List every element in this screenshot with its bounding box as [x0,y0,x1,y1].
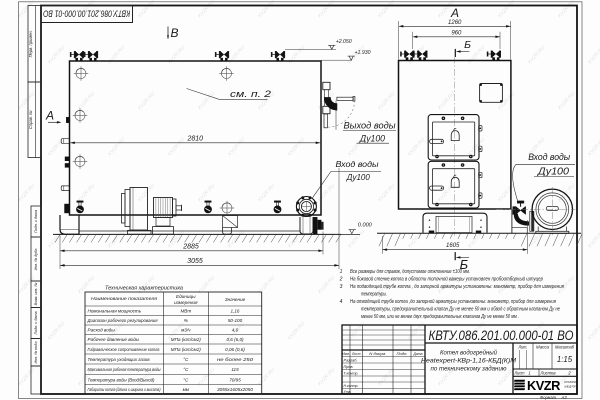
svg-text:Разраб.: Разраб. [344,358,358,363]
svg-text:%: % [184,318,188,323]
svg-text:Габариты котла (длина х ширина: Габариты котла (длина х ширина х высота) [88,387,161,392]
svg-text:1: 1 [528,371,530,376]
svg-text:Температура воды (Вход/Выход): Температура воды (Вход/Выход) [88,377,155,382]
svg-text:Б: Б [464,39,471,51]
svg-text:Ду100: Ду100 [346,172,370,182]
svg-text:Масштаб: Масштаб [555,344,575,349]
svg-text:Инв. № подл.: Инв. № подл. [34,341,38,364]
svg-text:Диапазон рабочего регулировани: Диапазон рабочего регулирования [87,318,158,323]
svg-text:+1.930: +1.930 [355,50,372,56]
svg-text:1260: 1260 [448,20,462,26]
svg-text:Листов: Листов [540,371,557,376]
svg-text:0,6 (6,0): 0,6 (6,0) [226,337,244,342]
svg-text:1: 1 [340,269,343,275]
svg-text:температуры.: температуры. [361,292,387,298]
svg-text:Т.контр.: Т.контр. [344,371,359,376]
svg-text:не более 250: не более 250 [217,357,254,362]
svg-text:Значение: Значение [225,297,246,302]
svg-text:Утв.: Утв. [344,389,352,394]
svg-text:Подп. и дата: Подп. и дата [34,311,38,334]
svg-text:N докум.: N докум. [369,351,386,356]
svg-text:менее 50 мм, или не менее дву: менее 50 мм, или не менее двух предохран… [361,314,519,320]
svg-text:960: 960 [451,31,462,37]
svg-text:+2.050: +2.050 [336,39,353,45]
svg-text:3055: 3055 [187,258,203,265]
svg-text:°С: °С [183,357,189,362]
svg-text:4: 4 [340,299,343,305]
svg-text:Ду100: Ду100 [537,166,569,178]
svg-text:Максимальная рабочая температу: Максимальная рабочая температура воды [88,367,161,372]
svg-text:1605: 1605 [446,243,460,249]
svg-text:КОТЕЛЬНЫЙ: КОТЕЛЬНЫЙ [564,380,577,384]
svg-text:2885: 2885 [182,244,199,251]
svg-text:3055х1605х2050: 3055х1605х2050 [217,387,253,392]
svg-text:Лист: Лист [514,371,525,376]
svg-text:Вход воды: Вход воды [336,160,379,169]
svg-text:115: 115 [231,367,239,372]
svg-text:Подп.: Подп. [397,351,408,356]
svg-text:Дата: Дата [413,351,424,356]
svg-text:°С: °С [183,367,189,372]
svg-text:ЗАВОД РЭП: ЗАВОД РЭП [564,385,576,389]
svg-text:Рабочее давление воды: Рабочее давление воды [88,337,140,342]
svg-text:А: А [450,6,459,20]
svg-text:В: В [170,26,178,40]
svg-text:Лист: Лист [351,351,361,356]
svg-text:Выход воды: Выход воды [344,120,396,130]
svg-text:1,16: 1,16 [231,309,240,314]
svg-text:Гидравлическое сопротивление к: Гидравлическое сопротивление котла [88,347,160,352]
svg-text:м3/ч: м3/ч [181,328,191,333]
svg-text:Наименование показателя: Наименование показателя [91,296,158,301]
svg-text:4,0: 4,0 [232,328,239,333]
svg-text:Инв. № дубл.: Инв. № дубл. [34,248,38,271]
svg-text:Справ. №: Справ. № [28,110,33,129]
svg-text:КВТУ.086.201.00.000-01 ВО: КВТУ.086.201.00.000-01 ВО [43,8,130,18]
svg-text:На отводящей трубе котла ,до з: На отводящей трубе котла ,до запорной ар… [350,298,556,305]
svg-text:температуры, предохранительный: температуры, предохранительный клапан Ду… [361,306,560,313]
svg-text:Котел водогрейный: Котел водогрейный [440,348,497,356]
svg-text:2810: 2810 [186,136,203,143]
svg-text:На подводящей трубе котла ,: На подводящей трубе котла , до запорной … [350,283,564,290]
svg-text:3: 3 [340,284,343,290]
svg-text:KVZR: KVZR [527,378,560,393]
svg-text:Взам. инв. №: Взам. инв. № [34,283,38,306]
svg-text:Все размеры для справок, допус: Все размеры для справок, допустимое откл… [350,269,470,275]
svg-text:Номинальная мощность: Номинальная мощность [88,309,142,314]
svg-text:70/95: 70/95 [229,377,241,382]
svg-text:На боковой стенке котла в обла: На боковой стенке котла в области топочн… [350,276,543,283]
svg-text:Пров.: Пров. [344,364,354,369]
svg-text:см. п. 2: см. п. 2 [230,89,272,100]
svg-text:Температура уходящих газов: Температура уходящих газов [88,357,151,362]
svg-text:Формат: Формат [540,395,556,400]
svg-text:Ду100: Ду100 [359,133,385,143]
svg-text:2: 2 [339,277,343,283]
svg-text:А3: А3 [560,395,567,400]
svg-text:Лит.: Лит. [518,344,528,349]
svg-text:Вход воды: Вход воды [528,152,570,163]
svg-text:1:15: 1:15 [557,355,573,364]
svg-text:МПа (кгс/см2): МПа (кгс/см2) [171,347,201,352]
svg-text:Перв. примен.: Перв. примен. [28,30,33,57]
svg-text:Н.контр.: Н.контр. [344,383,359,388]
svg-text:Подп. и дата: Подп. и дата [34,210,38,233]
svg-text:мм: мм [183,387,190,392]
svg-text:по техническому заданию: по техническому заданию [431,364,507,372]
svg-text:Единицы: Единицы [176,294,196,299]
svg-text:МВт: МВт [180,309,191,314]
svg-text:50-100: 50-100 [228,318,243,323]
svg-text:МПа (кгс/см2): МПа (кгс/см2) [171,337,201,342]
svg-text:А: А [45,109,54,123]
svg-text:0,06 (0,6): 0,06 (0,6) [225,347,245,352]
svg-text:Изм.: Изм. [342,351,350,356]
svg-text:КВТУ.086.201.00.000-01 ВО: КВТУ.086.201.00.000-01 ВО [429,328,574,343]
svg-text:°С: °С [183,377,189,382]
svg-text:Техническая характеристика: Техническая характеристика [105,286,183,292]
svg-text:Расход воды: Расход воды [88,328,116,333]
svg-text:0.000: 0.000 [358,223,373,229]
svg-text:Масса: Масса [536,344,550,349]
svg-text:измерения: измерения [174,300,198,305]
svg-text:Heatexpert-КВр-1,16-КБД(К)М: Heatexpert-КВр-1,16-КБД(К)М [421,357,517,364]
